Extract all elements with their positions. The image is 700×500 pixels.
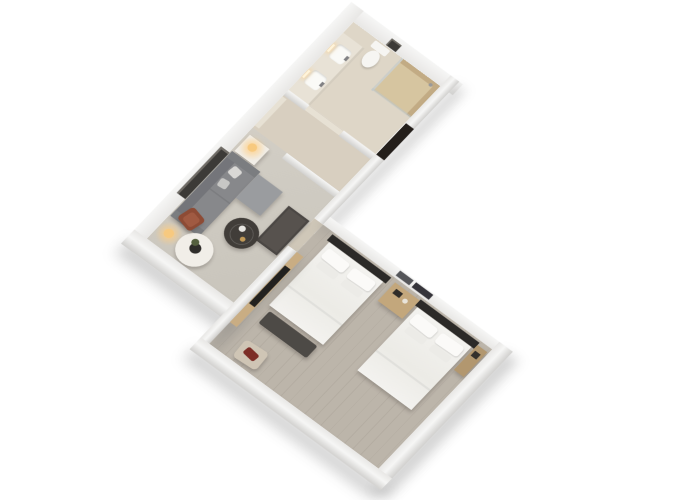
floorplan-canvas xyxy=(0,0,700,500)
